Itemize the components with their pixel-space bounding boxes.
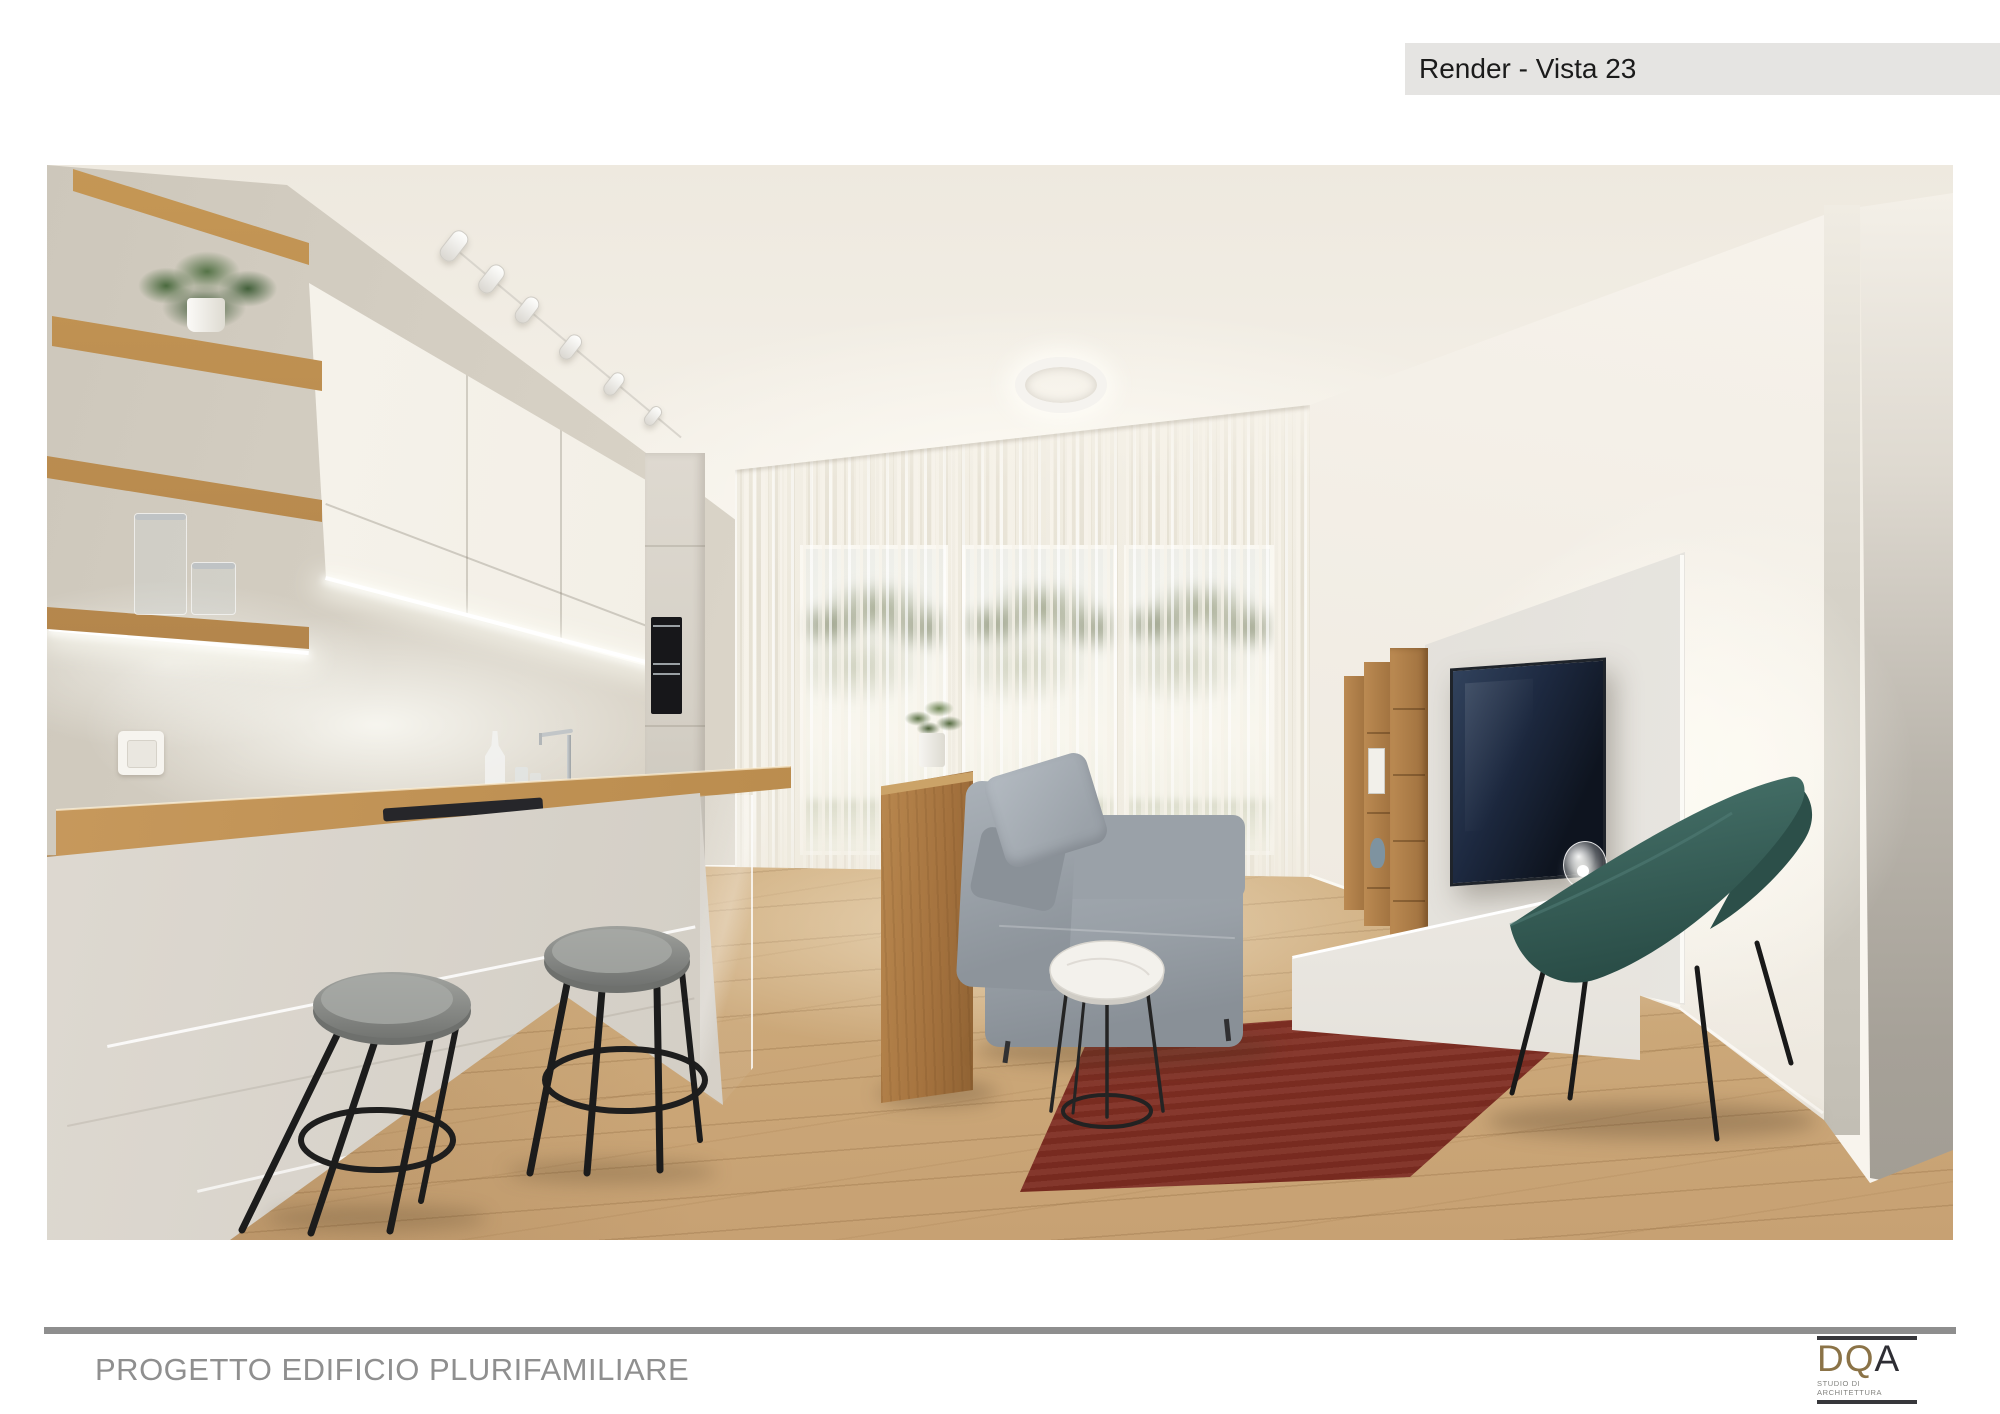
shelf-slab: [1390, 648, 1428, 943]
built-in-ovens: [651, 617, 682, 714]
book: [1368, 748, 1385, 794]
marble-side-table: [1037, 935, 1177, 1135]
logo-letters-gold: DQ: [1817, 1338, 1875, 1379]
shelf-divider: [1393, 774, 1425, 776]
oven-handle: [653, 663, 680, 665]
shelf-divider: [1393, 900, 1425, 902]
footer-divider: [44, 1327, 1956, 1334]
render-viewport: [47, 165, 1953, 1240]
glass-vase: [191, 562, 236, 615]
oak-shelving-unit: [1344, 648, 1428, 943]
dqa-logo: DQA STUDIO DI ARCHITETTURA: [1817, 1336, 1917, 1404]
view-title-bar: Render - Vista 23: [1405, 43, 2000, 95]
vase-rim: [192, 563, 235, 569]
cabinet-seam: [645, 725, 705, 727]
view-title: Render - Vista 23: [1419, 53, 1636, 85]
logo-letter-dark: A: [1875, 1338, 1901, 1379]
logo-wordmark: DQA: [1817, 1340, 1917, 1378]
decor-vase: [1370, 838, 1385, 868]
oven-handle: [653, 625, 680, 627]
ceiling-ring-lamp: [1015, 357, 1107, 413]
teal-lounge-chair: [1502, 763, 1832, 1153]
presentation-page: Render - Vista 23: [0, 0, 2000, 1414]
faucet-spout: [539, 733, 542, 745]
glass-vase: [134, 513, 187, 615]
shelf-divider: [1393, 840, 1425, 842]
vase-rim: [135, 514, 186, 520]
shelf-divider: [1393, 708, 1425, 710]
oven-handle: [653, 673, 680, 675]
bar-stool: [412, 920, 712, 1190]
wall-outlet: [118, 731, 164, 775]
project-title: PROGETTO EDIFICIO PLURIFAMILIARE: [95, 1352, 689, 1388]
logo-bottom-bar: [1817, 1400, 1917, 1404]
outlet-plate: [127, 740, 157, 768]
logo-tagline: STUDIO DI ARCHITETTURA: [1817, 1379, 1917, 1397]
plant-pot: [187, 298, 225, 332]
cabinet-seam: [645, 545, 705, 547]
console-plant-pot: [919, 733, 945, 767]
